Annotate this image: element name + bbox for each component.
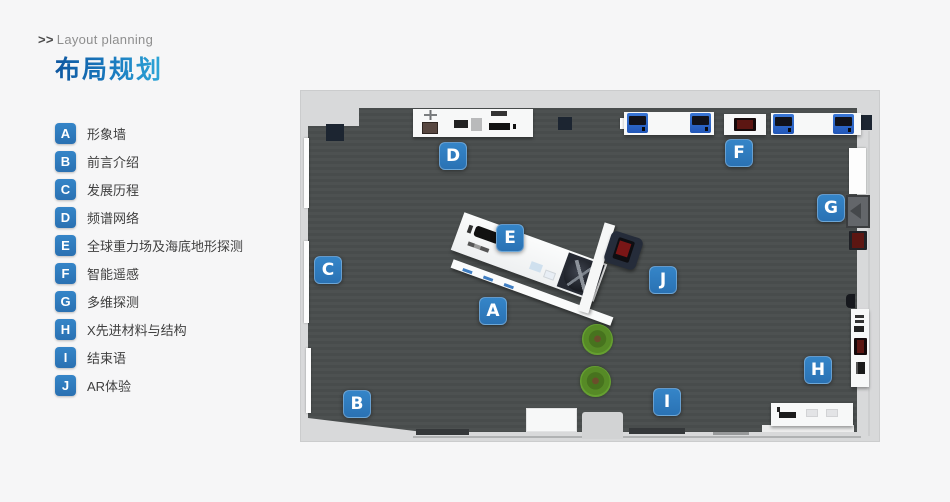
model-item bbox=[467, 225, 473, 234]
blue-machine bbox=[690, 113, 711, 133]
floor-plan: A B C D E F G H I J bbox=[300, 90, 880, 442]
legend-badge-i: I bbox=[55, 347, 76, 368]
left-wall-panel bbox=[306, 348, 311, 413]
legend-badge-e: E bbox=[55, 235, 76, 256]
ar-device-screen bbox=[612, 237, 635, 263]
paper-card bbox=[529, 261, 543, 273]
subtitle-text: Layout planning bbox=[57, 32, 153, 47]
model-item bbox=[467, 241, 489, 252]
legend-item-c: C 发展历程 bbox=[55, 175, 243, 203]
plan-marker-f: F bbox=[725, 139, 753, 167]
exhibit-table-i bbox=[771, 403, 853, 426]
plan-marker-j: J bbox=[649, 266, 677, 294]
paper-card bbox=[826, 409, 838, 417]
exhibit-table-f1 bbox=[624, 112, 714, 135]
equipment-dot bbox=[513, 124, 516, 129]
legend-badge-d: D bbox=[55, 207, 76, 228]
equipment-bar bbox=[491, 111, 507, 116]
screen-glow bbox=[852, 233, 864, 248]
plan-marker-a: A bbox=[479, 297, 507, 325]
material-sample bbox=[856, 362, 865, 374]
material-sample bbox=[855, 320, 864, 323]
exhibit-table-f2 bbox=[724, 114, 766, 135]
legend-label-h: X先进材料与结构 bbox=[87, 320, 187, 339]
equipment-bar bbox=[779, 412, 796, 418]
plan-marker-g: G bbox=[817, 194, 845, 222]
exhibit-table-f3 bbox=[771, 113, 861, 135]
page-title: 布局规划 bbox=[55, 50, 163, 86]
screen-glow bbox=[857, 340, 864, 353]
blue-machine bbox=[773, 114, 794, 134]
header: >>Layout planning 布局规划 bbox=[38, 32, 163, 86]
plan-marker-h: H bbox=[804, 356, 832, 384]
blue-machine bbox=[627, 113, 648, 133]
legend-badge-g: G bbox=[55, 291, 76, 312]
plan-marker-d: D bbox=[439, 142, 467, 170]
blue-machine bbox=[833, 114, 854, 134]
material-sample bbox=[855, 315, 864, 318]
legend-item-d: D 频谱网络 bbox=[55, 203, 243, 231]
left-wall-panel bbox=[304, 241, 309, 323]
legend-label-g: 多维探测 bbox=[87, 292, 139, 311]
bottom-wall-line bbox=[413, 436, 861, 438]
drone-model bbox=[424, 110, 437, 120]
legend-item-e: E 全球重力场及海底地形探测 bbox=[55, 231, 243, 259]
screen-device bbox=[854, 338, 867, 355]
legend-label-j: AR体验 bbox=[87, 376, 131, 395]
plant bbox=[582, 324, 613, 355]
exhibit-table-d bbox=[413, 109, 533, 137]
paper-card bbox=[806, 409, 818, 417]
screen-device bbox=[849, 231, 867, 250]
equipment-box bbox=[422, 122, 438, 134]
paper-card bbox=[543, 269, 556, 280]
material-sample bbox=[854, 326, 864, 332]
right-wall-line bbox=[868, 131, 870, 436]
entrance-step bbox=[582, 412, 623, 439]
legend-label-c: 发展历程 bbox=[87, 180, 139, 199]
wall-fixture bbox=[846, 294, 855, 308]
plan-marker-i: I bbox=[653, 388, 681, 416]
slide-page: >>Layout planning 布局规划 A 形象墙 B 前言介绍 C 发展… bbox=[0, 0, 950, 502]
legend-label-f: 智能遥感 bbox=[87, 264, 139, 283]
legend-item-b: B 前言介绍 bbox=[55, 147, 243, 175]
screen-glow bbox=[737, 120, 753, 129]
left-wall-panel bbox=[304, 138, 309, 208]
exhibit-panel-h bbox=[851, 309, 869, 387]
column-block bbox=[558, 117, 572, 130]
legend-item-f: F 智能遥感 bbox=[55, 259, 243, 287]
screen-device bbox=[734, 118, 756, 131]
chevrons-icon: >> bbox=[38, 32, 54, 47]
entrance-mat bbox=[629, 428, 685, 434]
legend-badge-b: B bbox=[55, 151, 76, 172]
kiosk-g bbox=[846, 195, 870, 228]
right-wall-panel bbox=[849, 148, 866, 194]
legend-badge-j: J bbox=[55, 375, 76, 396]
column-block bbox=[326, 124, 344, 141]
entrance-mat bbox=[416, 429, 469, 435]
legend-item-i: I 结束语 bbox=[55, 343, 243, 371]
legend-badge-a: A bbox=[55, 123, 76, 144]
ar-screen-glow bbox=[616, 240, 632, 257]
plant bbox=[580, 366, 611, 397]
equipment-bar bbox=[489, 123, 510, 130]
legend: A 形象墙 B 前言介绍 C 发展历程 D 频谱网络 E 全球重力场及海底地形探… bbox=[55, 119, 243, 399]
legend-badge-c: C bbox=[55, 179, 76, 200]
legend-item-a: A 形象墙 bbox=[55, 119, 243, 147]
plan-marker-c: C bbox=[314, 256, 342, 284]
legend-label-d: 频谱网络 bbox=[87, 208, 139, 227]
legend-item-j: J AR体验 bbox=[55, 371, 243, 399]
legend-item-g: G 多维探测 bbox=[55, 287, 243, 315]
plan-marker-e: E bbox=[496, 224, 524, 252]
legend-label-a: 形象墙 bbox=[87, 124, 126, 143]
legend-label-i: 结束语 bbox=[87, 348, 126, 367]
plan-marker-b: B bbox=[343, 390, 371, 418]
equipment-box bbox=[471, 118, 482, 131]
legend-badge-h: H bbox=[55, 319, 76, 340]
legend-item-h: H X先进材料与结构 bbox=[55, 315, 243, 343]
threshold-strip bbox=[713, 432, 749, 435]
table-base-strip bbox=[762, 425, 854, 432]
equipment-dot bbox=[777, 407, 780, 412]
equipment-box bbox=[454, 120, 468, 128]
legend-label-e: 全球重力场及海底地形探测 bbox=[87, 236, 243, 255]
reception-block bbox=[526, 408, 577, 432]
legend-badge-f: F bbox=[55, 263, 76, 284]
legend-label-b: 前言介绍 bbox=[87, 152, 139, 171]
subtitle-en: >>Layout planning bbox=[38, 32, 163, 47]
